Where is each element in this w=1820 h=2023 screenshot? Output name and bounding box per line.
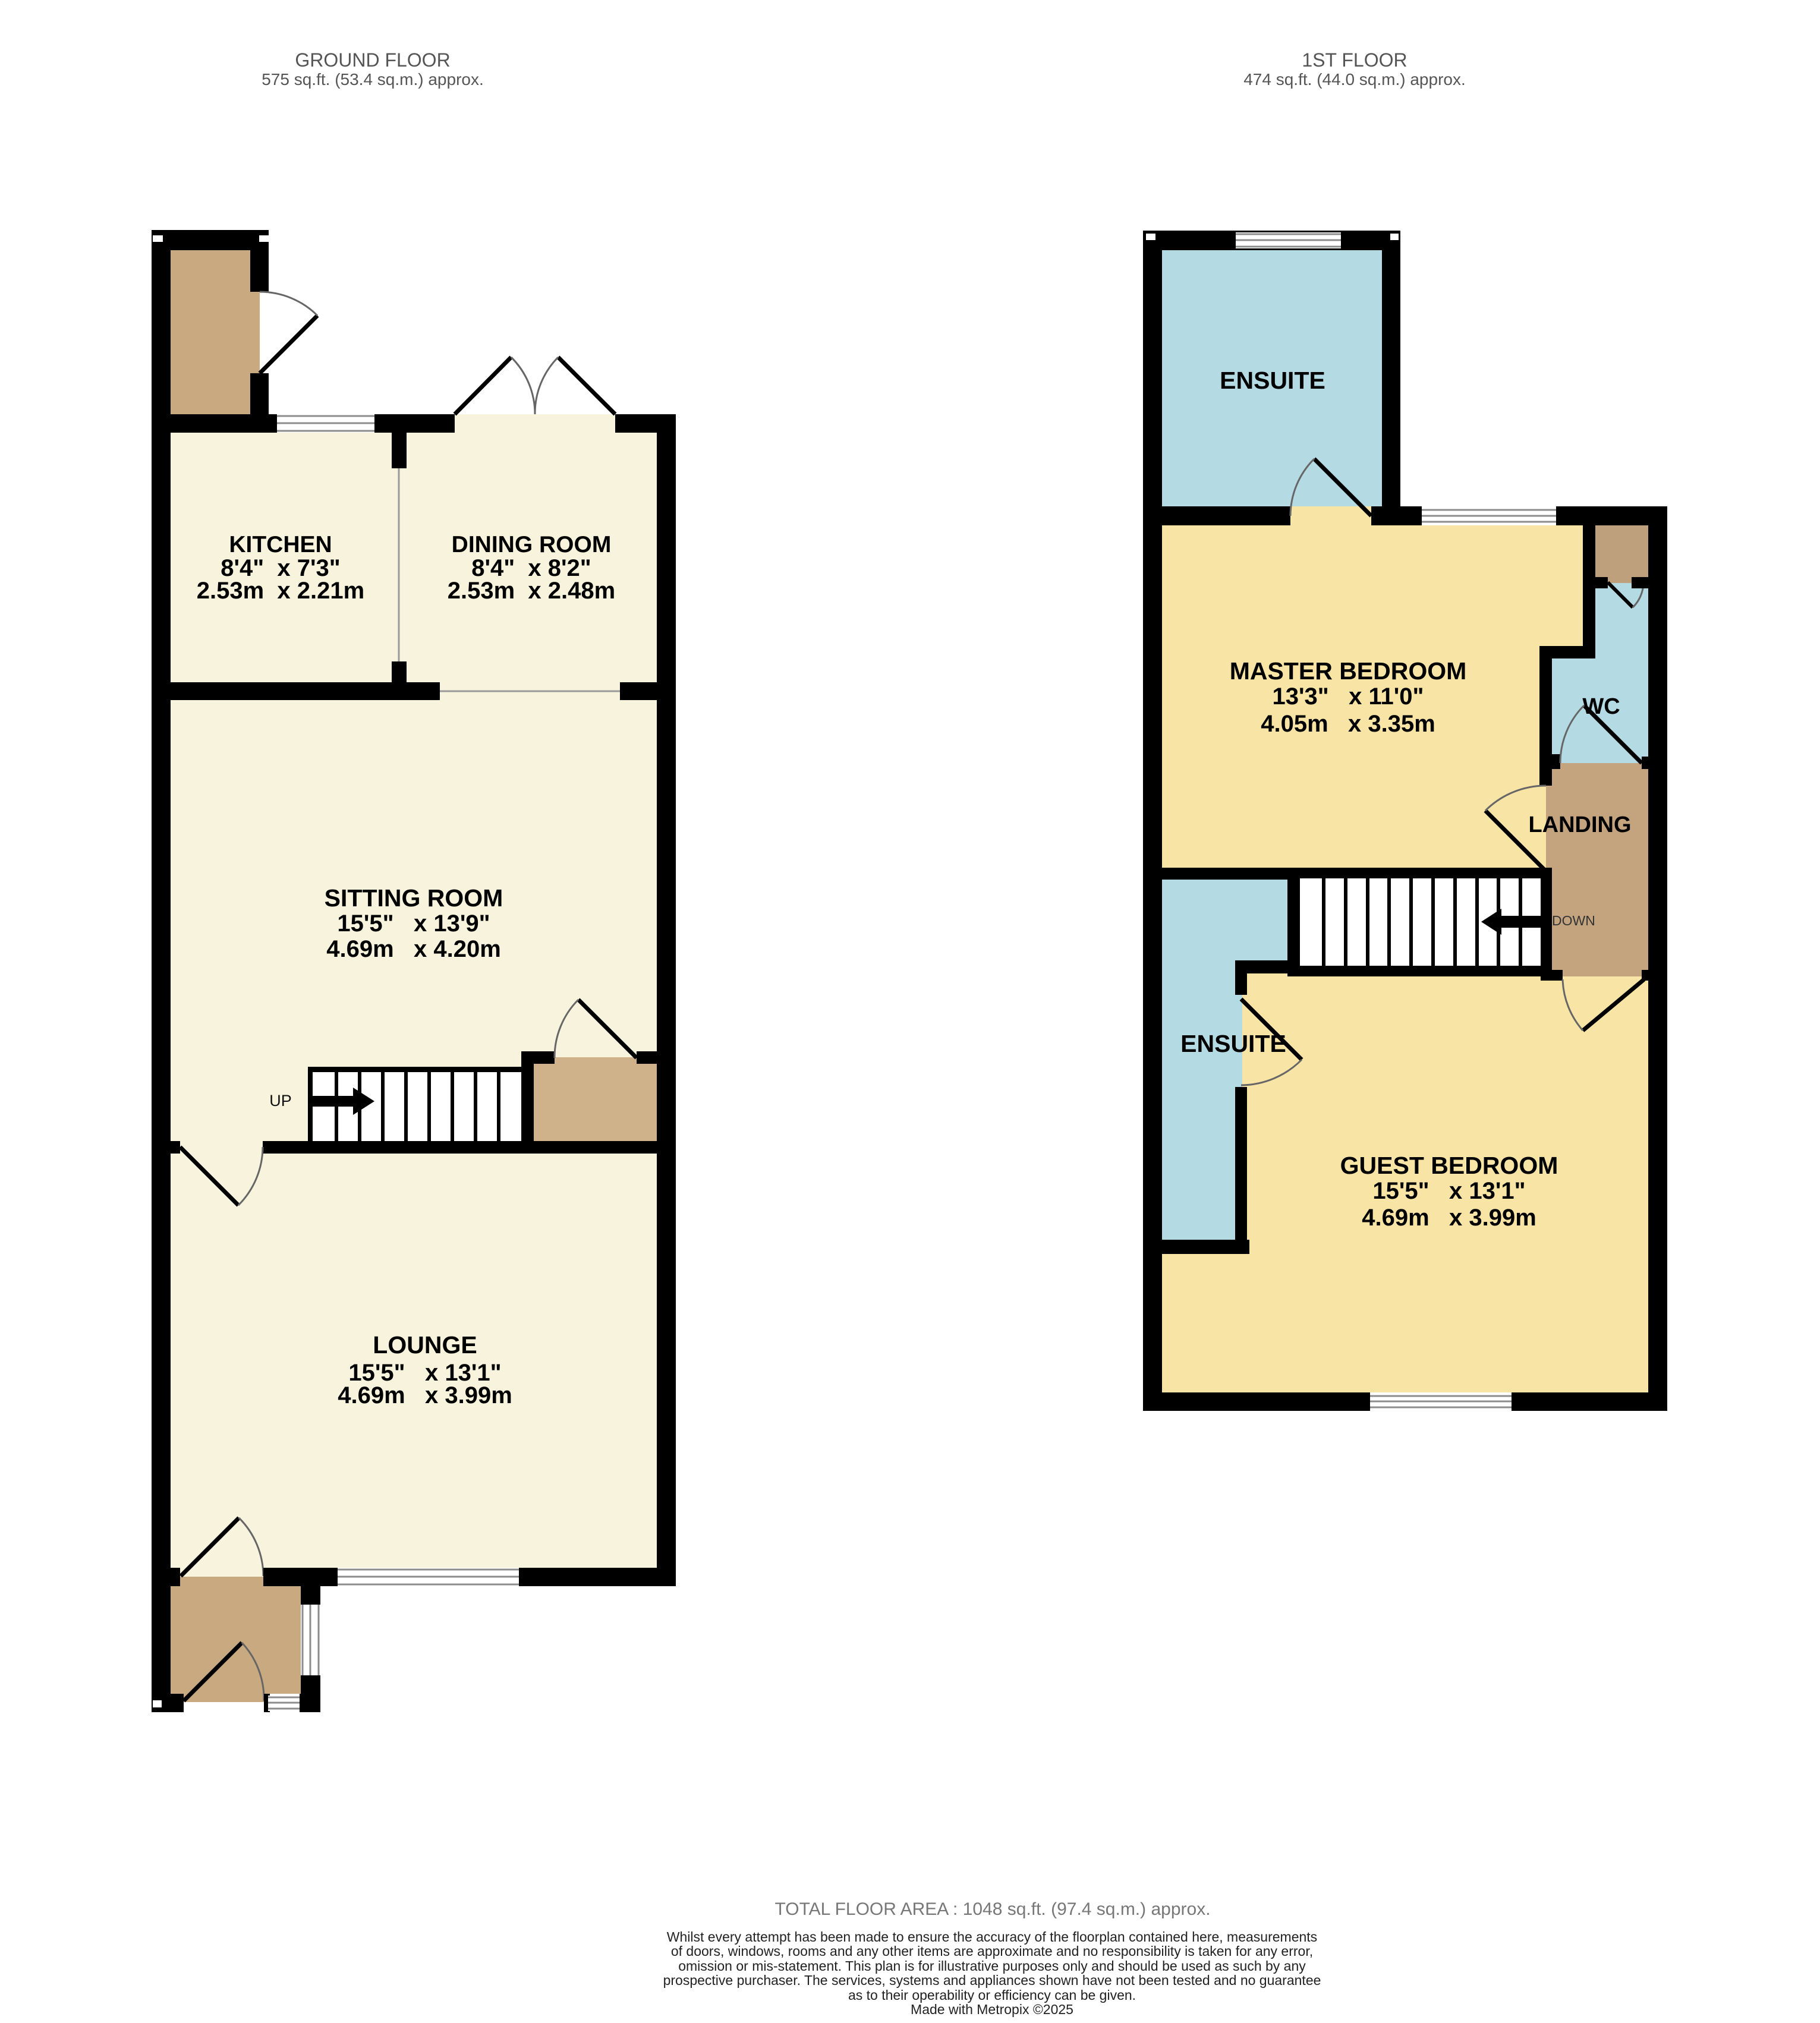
svg-text:Made with Metropix ©2025: Made with Metropix ©2025 bbox=[911, 2002, 1073, 2017]
svg-text:DOWN: DOWN bbox=[1552, 913, 1595, 928]
svg-text:DINING ROOM: DINING ROOM bbox=[452, 532, 612, 557]
svg-text:ENSUITE: ENSUITE bbox=[1180, 1030, 1286, 1057]
svg-text:of doors, windows, rooms and a: of doors, windows, rooms and any other i… bbox=[671, 1943, 1313, 1959]
svg-text:4.05m x 3.35m: 4.05m x 3.35m bbox=[1261, 711, 1435, 737]
svg-text:1ST FLOOR: 1ST FLOOR bbox=[1302, 49, 1407, 71]
svg-text:15'5" x 13'1": 15'5" x 13'1" bbox=[1372, 1178, 1525, 1204]
svg-text:ENSUITE: ENSUITE bbox=[1220, 367, 1325, 394]
svg-text:as to their operability or eff: as to their operability or efficiency ca… bbox=[848, 1987, 1136, 2003]
svg-text:13'3" x 11'0": 13'3" x 11'0" bbox=[1273, 683, 1424, 710]
svg-text:SITTING ROOM: SITTING ROOM bbox=[325, 884, 503, 912]
svg-text:WC: WC bbox=[1582, 694, 1620, 719]
svg-text:575 sq.ft. (53.4 sq.m.) approx: 575 sq.ft. (53.4 sq.m.) approx. bbox=[262, 70, 484, 89]
svg-text:LOUNGE: LOUNGE bbox=[373, 1331, 477, 1359]
svg-text:prospective purchaser. The ser: prospective purchaser. The services, sys… bbox=[663, 1972, 1321, 1988]
svg-text:4.69m x 3.99m: 4.69m x 3.99m bbox=[1362, 1205, 1536, 1231]
svg-text:474 sq.ft. (44.0 sq.m.) approx: 474 sq.ft. (44.0 sq.m.) approx. bbox=[1243, 70, 1466, 89]
svg-text:Whilst every attempt has been: Whilst every attempt has been made to en… bbox=[667, 1929, 1317, 1945]
svg-text:4.69m x 4.20m: 4.69m x 4.20m bbox=[326, 936, 501, 962]
svg-text:omission or mis-statement. Thi: omission or mis-statement. This plan is … bbox=[678, 1958, 1306, 1974]
svg-text:GROUND FLOOR: GROUND FLOOR bbox=[295, 49, 450, 71]
svg-text:KITCHEN: KITCHEN bbox=[229, 532, 332, 557]
svg-text:UP: UP bbox=[269, 1092, 292, 1110]
svg-text:15'5" x 13'9": 15'5" x 13'9" bbox=[337, 910, 490, 937]
svg-text:LANDING: LANDING bbox=[1528, 812, 1631, 837]
svg-text:MASTER BEDROOM: MASTER BEDROOM bbox=[1230, 657, 1467, 685]
svg-text:4.69m x 3.99m: 4.69m x 3.99m bbox=[338, 1382, 512, 1408]
svg-text:2.53m x 2.21m: 2.53m x 2.21m bbox=[197, 578, 364, 604]
svg-text:TOTAL FLOOR AREA : 1048 sq.ft.: TOTAL FLOOR AREA : 1048 sq.ft. (97.4 sq.… bbox=[774, 1899, 1210, 1919]
svg-text:GUEST BEDROOM: GUEST BEDROOM bbox=[1340, 1152, 1558, 1179]
svg-text:2.53m x 2.48m: 2.53m x 2.48m bbox=[448, 578, 615, 604]
